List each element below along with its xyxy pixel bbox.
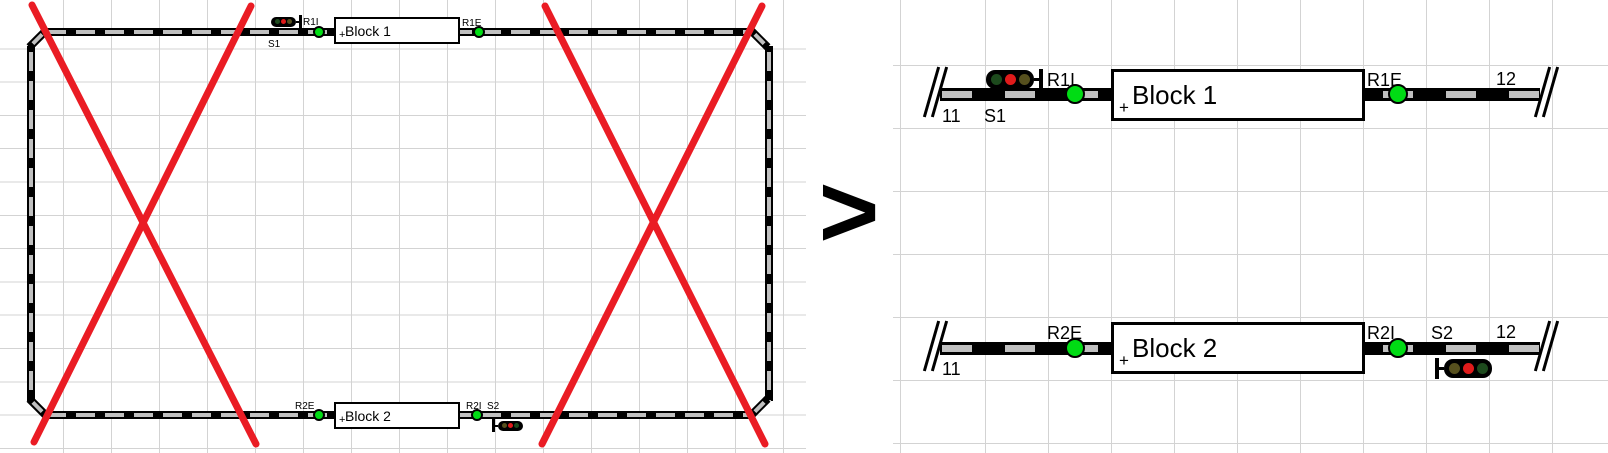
label-end-11: 11 xyxy=(942,107,961,125)
block-orientation-mark: + xyxy=(1119,352,1129,369)
lamp-red-on xyxy=(1463,363,1474,374)
signal-mast xyxy=(299,15,302,28)
lamp-yellow-off xyxy=(287,19,292,24)
label-r2e: R2E xyxy=(1047,324,1082,342)
label-s2: S2 xyxy=(487,402,499,412)
corner-bottom-left xyxy=(27,396,49,418)
signal-s1-icon xyxy=(986,69,1043,90)
block-1-label: Block 1 xyxy=(336,19,458,42)
label-r2i: R2I xyxy=(1367,324,1395,342)
lamp-green-off xyxy=(275,19,280,24)
left-track-plan: Block 1 + Block 2 + S1 R1I R1E R2E R2I S… xyxy=(0,0,806,453)
label-s2: S2 xyxy=(1431,324,1453,342)
signal-body xyxy=(986,70,1034,89)
signal-body xyxy=(498,421,523,431)
track-end-right-icon xyxy=(1536,66,1562,118)
label-end-12: 12 xyxy=(1496,70,1516,88)
label-end-11: 11 xyxy=(942,360,961,378)
sensor-r2e-icon xyxy=(313,409,325,421)
label-r2i: R2I xyxy=(466,402,482,412)
lamp-yellow-off xyxy=(502,423,507,428)
signal-s1-icon xyxy=(271,15,302,28)
block-2: Block 2 + xyxy=(334,402,460,429)
lamp-green-off xyxy=(991,74,1002,85)
block-2: Block 2 + xyxy=(1111,322,1365,374)
label-s1: S1 xyxy=(268,40,280,50)
label-s1: S1 xyxy=(984,107,1006,125)
label-r1i: R1I xyxy=(1047,71,1075,89)
lamp-green-off xyxy=(1477,363,1488,374)
block-2-label: Block 2 xyxy=(336,404,458,427)
corner-top-right xyxy=(749,28,771,50)
block-2-label: Block 2 xyxy=(1114,325,1362,371)
block-orientation-mark: + xyxy=(1119,99,1129,116)
signal-mast xyxy=(1039,69,1043,90)
signal-body xyxy=(1444,359,1492,378)
block-1-label: Block 1 xyxy=(1114,72,1362,118)
label-r1e: R1E xyxy=(1367,71,1402,89)
right-track-plan: Block 1 + 11 S1 R1I R1E 12 Block 2 + 11 … xyxy=(893,0,1608,453)
lamp-red-on xyxy=(281,19,286,24)
red-cross-overlay xyxy=(0,0,806,453)
label-r2e: R2E xyxy=(295,402,314,412)
signal-s2-icon xyxy=(492,419,523,432)
lamp-green-off xyxy=(514,423,519,428)
label-end-12: 12 xyxy=(1496,323,1516,341)
block-orientation-mark: + xyxy=(339,30,345,41)
transform-arrow: > xyxy=(804,158,894,266)
lamp-red-on xyxy=(508,423,513,428)
track-end-right-icon xyxy=(1536,320,1562,372)
lamp-red-on xyxy=(1005,74,1016,85)
label-r1e: R1E xyxy=(462,19,481,29)
left-track xyxy=(27,46,35,401)
lamp-yellow-off xyxy=(1449,363,1460,374)
corner-top-left xyxy=(27,28,49,50)
signal-body xyxy=(271,17,296,27)
block-1: Block 1 + xyxy=(334,17,460,44)
signal-s2-icon xyxy=(1435,358,1492,379)
lamp-yellow-off xyxy=(1019,74,1030,85)
block-orientation-mark: + xyxy=(339,415,345,426)
corner-bottom-right xyxy=(749,396,771,418)
right-track xyxy=(765,46,773,401)
block-1: Block 1 + xyxy=(1111,69,1365,121)
label-r1i: R1I xyxy=(303,18,319,28)
